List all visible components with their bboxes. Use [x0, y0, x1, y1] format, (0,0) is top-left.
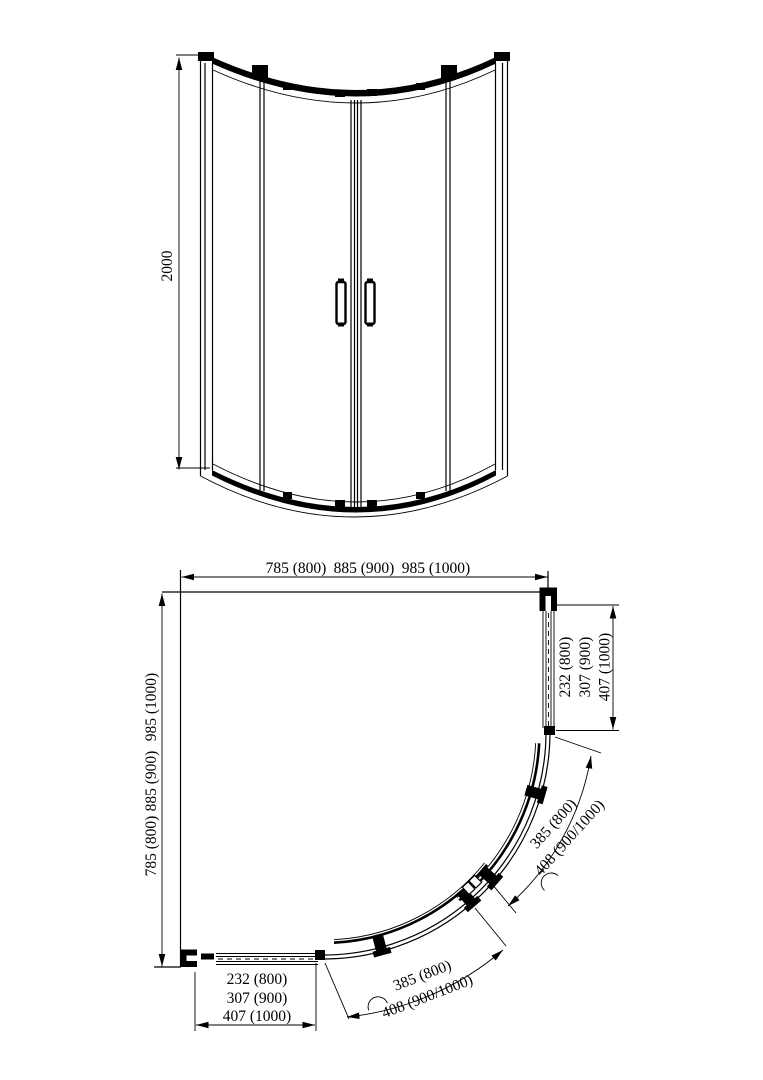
divider-top-brackets [252, 65, 457, 78]
right-panel-dimension: 232 (800) 307 (900) 407 (1000) [556, 605, 619, 731]
handle-cap-top [338, 279, 344, 283]
wall-lines [154, 570, 548, 967]
sliding-door-2[interactable] [334, 865, 487, 943]
wall-profile-top-right [540, 588, 558, 612]
sliding-door-2-glass [334, 863, 485, 940]
wall-profile-bottom-left [180, 950, 197, 968]
left-depth-label-900: 885 (900) [143, 751, 160, 812]
handle-bar[interactable] [366, 282, 375, 324]
plan-view: 785 (800) 885 (900) 985 (1000) 785 (800)… [143, 560, 619, 1031]
top-width-dimension: 785 (800) 885 (900) 985 (1000) [182, 560, 548, 577]
left-depth-label-1000: 985 (1000) [143, 673, 160, 741]
right-panel-label-900: 307 (900) [577, 637, 594, 698]
shower-enclosure-drawing: 2000 785 (800) 885 (900) 985 (1000) [0, 0, 763, 1080]
handle-bar[interactable] [337, 282, 346, 324]
right-panel-label-800: 232 (800) [557, 637, 574, 698]
panel-divider-right [446, 80, 450, 491]
bottom-panel-dimension: 232 (800) 307 (900) 407 (1000) [195, 963, 316, 1031]
right-post-cap [494, 52, 510, 61]
top-width-label-900: 885 (900) [334, 560, 395, 577]
left-post [201, 55, 213, 476]
sliding-door-1-glass [457, 743, 536, 897]
technical-drawing-sheet: 2000 785 (800) 885 (900) 985 (1000) [0, 0, 763, 1080]
right-door-arc-dimension: 385 (800) 408 (900/1000) [492, 737, 608, 913]
bottom-panel-label-900: 307 (900) [227, 990, 288, 1007]
handle-cap-bottom [367, 323, 373, 327]
door-handle-left[interactable] [337, 279, 346, 327]
curved-track [323, 732, 550, 959]
top-width-label-1000: 985 (1000) [402, 560, 470, 577]
center-door-stiles [351, 100, 361, 507]
bottom-panel-label-1000: 407 (1000) [223, 1008, 291, 1025]
handle-cap-bottom [338, 323, 344, 327]
bottom-door-arc-dimension: 385 (800) 408 (900/1000) [325, 908, 506, 1022]
height-dimension-label: 2000 [159, 250, 176, 281]
bottom-panel-label-800: 232 (800) [227, 971, 288, 988]
door-handle-right[interactable] [366, 279, 375, 327]
left-depth-dimension: 785 (800) 885 (900) 985 (1000) [143, 594, 162, 967]
panel-end-bracket [201, 954, 214, 960]
right-post [496, 55, 508, 476]
height-extension-lines [176, 55, 213, 468]
right-panel-label-1000: 407 (1000) [597, 633, 614, 701]
left-post-cap [198, 52, 214, 61]
panel-divider-left [260, 80, 264, 491]
handle-cap-top [367, 279, 373, 283]
top-width-label-800: 785 (800) [266, 560, 327, 577]
left-depth-label-800: 785 (800) [143, 816, 160, 877]
front-elevation-view: 2000 [159, 52, 510, 517]
